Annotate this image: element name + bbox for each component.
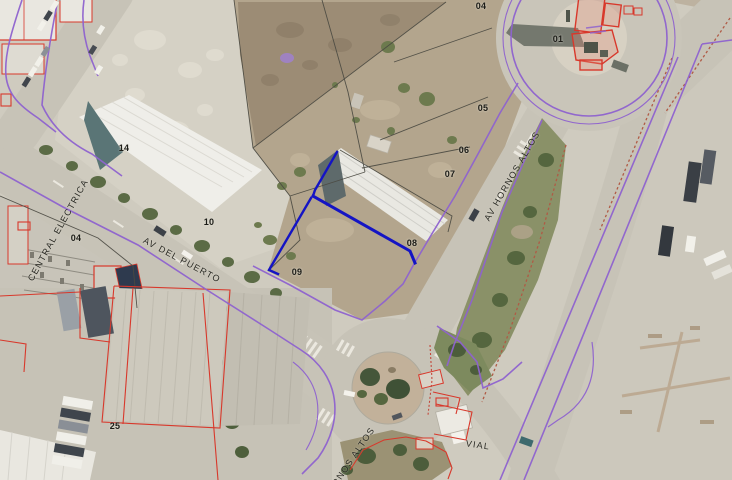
south-roundabout-island [352, 352, 424, 424]
aerial-scene [0, 0, 732, 480]
map-canvas[interactable]: 0405060708091014042501CENTRAL ELECTRICAA… [0, 0, 732, 480]
